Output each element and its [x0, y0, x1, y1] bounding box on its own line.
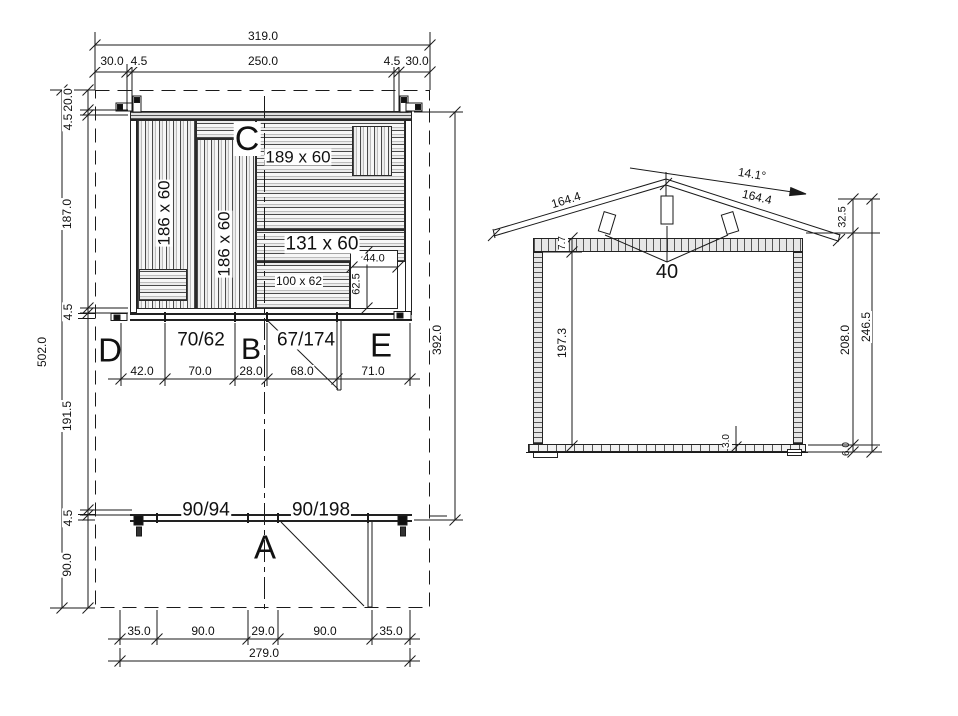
dim-left-chain-2: 187.0	[61, 198, 73, 230]
dim-interior-height: 197.3	[556, 327, 568, 359]
dim-left-chain-6: 90.0	[61, 552, 73, 577]
dim-top-chain-1: 4.5	[130, 55, 149, 67]
panel-label-mid-board: 186 x 60	[216, 210, 233, 277]
dim-beam-height: 7.7	[558, 235, 568, 251]
dim-right-height: 392.0	[431, 324, 443, 356]
dim-total-elevation-height: 246.5	[860, 311, 872, 343]
opening-label-porch-window: 90/94	[181, 501, 231, 520]
dim-top-chain-2: 250.0	[247, 55, 279, 67]
dim-top-chain-4: 30.0	[404, 55, 429, 67]
opening-label-porch-door: 90/198	[291, 501, 351, 520]
dim-left-chain-4: 191.5	[61, 400, 73, 432]
construction-drawing: 319.0 30.0 4.5 250.0 4.5 30.0 502.0 20.0…	[0, 0, 958, 716]
dim-mid-chain-3: 68.0	[289, 365, 314, 377]
dim-mid-chain-2: 28.0	[238, 365, 263, 377]
dim-mid-chain-4: 71.0	[360, 365, 385, 377]
dim-bottom-chain-0: 35.0	[126, 625, 151, 637]
panel-label-small-board: 100 x 62	[275, 275, 323, 287]
dim-left-chain-0: 20.0	[62, 87, 74, 112]
dim-notch-depth: 62.5	[352, 272, 363, 295]
dim-slope-right: 164.4	[740, 188, 774, 207]
dim-roof-angle: 14.1°	[736, 166, 768, 183]
dim-left-chain-1: 4.5	[62, 113, 74, 132]
room-label-d: D	[97, 334, 123, 367]
panel-label-right-board: 131 x 60	[285, 235, 360, 254]
dim-purlin-size: 40	[655, 262, 679, 282]
dim-left-chain-3: 4.5	[62, 303, 74, 322]
dim-total-width: 319.0	[247, 30, 279, 42]
dim-mid-chain-0: 42.0	[129, 365, 154, 377]
dim-bottom-chain-4: 35.0	[378, 625, 403, 637]
room-label-e: E	[369, 329, 393, 362]
panel-label-left-board: 186 x 60	[156, 179, 173, 246]
dim-bottom-chain-1: 90.0	[190, 625, 215, 637]
dim-deck-thickness: 3.0	[722, 433, 732, 449]
dim-roof-rise: 32.5	[838, 205, 849, 228]
room-label-a: A	[253, 531, 277, 564]
panel-label-top-board: 189 x 60	[264, 149, 331, 166]
drawing-labels: 319.0 30.0 4.5 250.0 4.5 30.0 502.0 20.0…	[0, 0, 958, 716]
dim-bottom-chain-3: 90.0	[312, 625, 337, 637]
dim-top-chain-0: 30.0	[99, 55, 124, 67]
dim-top-chain-3: 4.5	[383, 55, 402, 67]
dim-mid-chain-1: 70.0	[187, 365, 212, 377]
dim-bottom-chain-2: 29.0	[250, 625, 275, 637]
room-label-c: C	[234, 122, 261, 156]
dim-slope-left: 164.4	[549, 190, 583, 211]
dim-left-chain-5: 4.5	[62, 509, 74, 528]
dim-floor-height: 6.0	[842, 441, 852, 457]
dim-wall-height: 208.0	[839, 324, 851, 356]
dim-total-height: 502.0	[36, 336, 48, 368]
opening-label-front-window: 70/62	[176, 331, 226, 350]
dim-notch-width: 44.0	[362, 254, 385, 265]
room-label-b: B	[240, 335, 262, 365]
opening-label-front-door: 67/174	[276, 331, 336, 350]
dim-bottom-total: 279.0	[248, 647, 280, 659]
